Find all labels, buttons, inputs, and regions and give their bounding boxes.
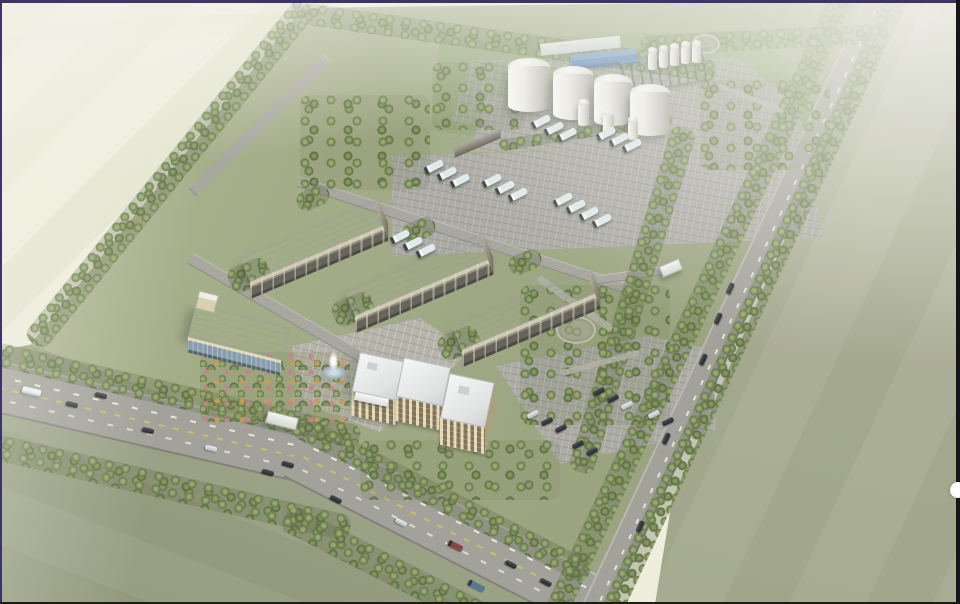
rooftop-silo-4 (681, 44, 690, 64)
page-dot (950, 482, 960, 498)
storage-tank-1 (508, 58, 550, 112)
small-silo-3 (628, 119, 638, 140)
grove-north-east-garden (700, 80, 830, 170)
small-silo-1 (578, 102, 589, 126)
frame-border-right (956, 0, 960, 604)
rooftop-silo-1 (648, 50, 657, 70)
rooftop-silo-5 (692, 43, 701, 63)
tank-body (508, 66, 550, 112)
grove-north-west-lawn (300, 95, 430, 190)
rooftop-silo-2 (659, 48, 668, 68)
rooftop-silo-3 (670, 46, 679, 66)
frame-border-top (0, 0, 960, 3)
frame-border-left (0, 0, 2, 604)
aerial-rendering-canvas (0, 0, 960, 604)
fountain-jet (329, 352, 338, 370)
